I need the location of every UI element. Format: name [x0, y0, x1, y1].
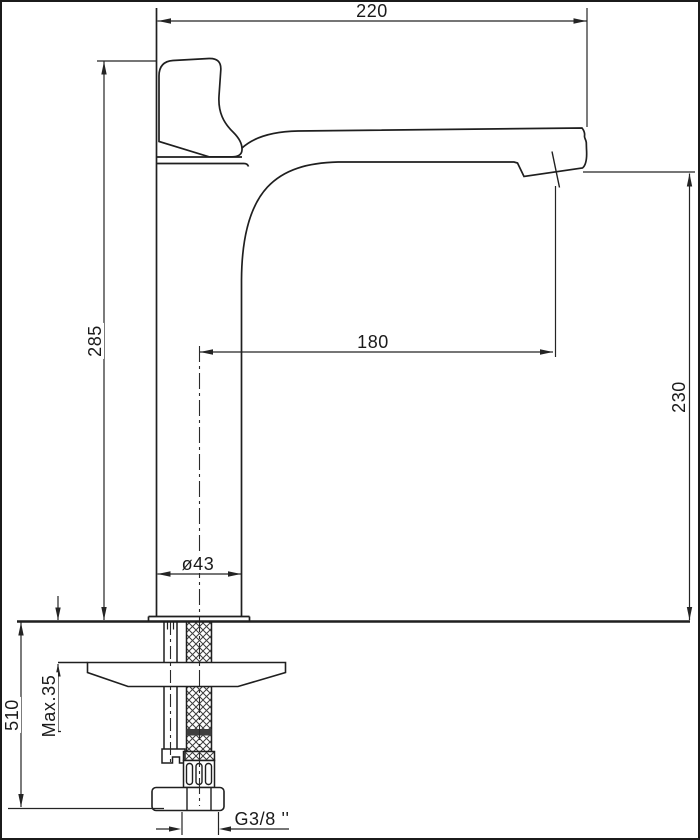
faucet-technical-drawing: [0, 0, 700, 840]
dim-label-overall-width: 220: [354, 2, 390, 20]
dim-label-below-deck-length: 510: [3, 697, 21, 733]
dimension-lines: [8, 8, 695, 835]
hex-nut: [152, 788, 224, 811]
lever-handle: [159, 58, 242, 156]
spout-outline: [242, 128, 587, 617]
cartridge-cap: [157, 157, 249, 167]
dim-label-max-thickness: Max.35: [40, 673, 58, 740]
dim-label-body-height: 285: [86, 323, 104, 359]
dim-220: [158, 8, 588, 127]
dim-label-base-diameter: ø43: [180, 555, 217, 573]
dim-label-spout-height: 230: [670, 379, 688, 415]
faucet-body: [149, 8, 587, 621]
dim-510: [8, 623, 164, 809]
rod-clamp-bracket: [162, 749, 185, 763]
dim-label-spout-reach: 180: [355, 333, 391, 351]
technical-drawing-page: 220 285 180 230 ø43 Max.35 510 G3/8 '': [0, 0, 700, 840]
dim-285: [97, 61, 157, 620]
dim-label-connection-thread: G3/8 '': [232, 810, 291, 828]
aerator-axis-tick: [552, 152, 560, 188]
clamp-plate: [58, 663, 286, 687]
